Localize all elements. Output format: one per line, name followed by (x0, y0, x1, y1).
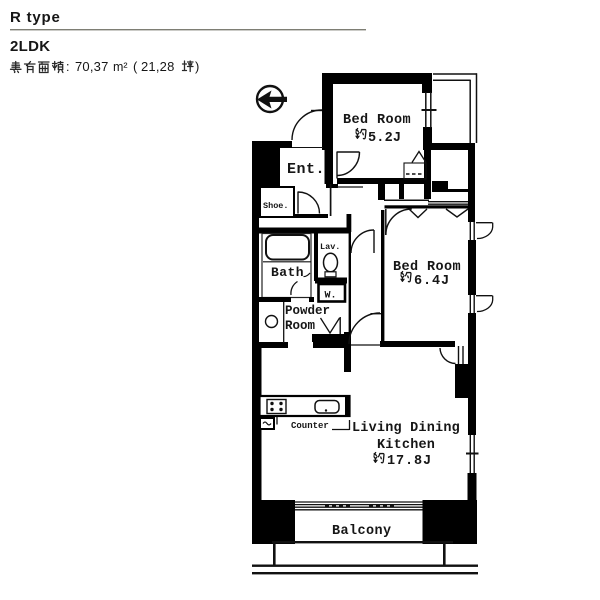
svg-text:Bed Room: Bed Room (393, 260, 461, 275)
svg-text:Room: Room (285, 319, 316, 333)
svg-text:Bath: Bath (271, 265, 304, 280)
svg-text:Kitchen: Kitchen (377, 438, 435, 453)
svg-text:21,28: 21,28 (141, 59, 175, 74)
svg-text:Balcony: Balcony (332, 524, 392, 539)
svg-text::: : (66, 60, 69, 74)
svg-text:Shoe.: Shoe. (263, 201, 289, 211)
svg-text:Living Dining: Living Dining (352, 421, 460, 436)
svg-text:Lav.: Lav. (320, 242, 340, 252)
svg-text:5.2J: 5.2J (368, 131, 401, 146)
svg-text:(: ( (133, 59, 138, 74)
svg-text:Bed Room: Bed Room (343, 113, 411, 128)
svg-text:2LDK: 2LDK (10, 38, 50, 55)
svg-text:70,37: 70,37 (75, 59, 109, 74)
svg-text:17.8J: 17.8J (387, 454, 432, 469)
svg-text:R type: R type (10, 9, 61, 26)
svg-text:6.4J: 6.4J (414, 274, 450, 289)
svg-text:Powder: Powder (285, 304, 330, 318)
svg-text:Ent.: Ent. (287, 161, 325, 178)
svg-text:): ) (195, 59, 199, 74)
svg-text:W.: W. (325, 291, 337, 302)
svg-text:m²: m² (113, 60, 128, 74)
svg-text:Counter: Counter (291, 421, 329, 431)
